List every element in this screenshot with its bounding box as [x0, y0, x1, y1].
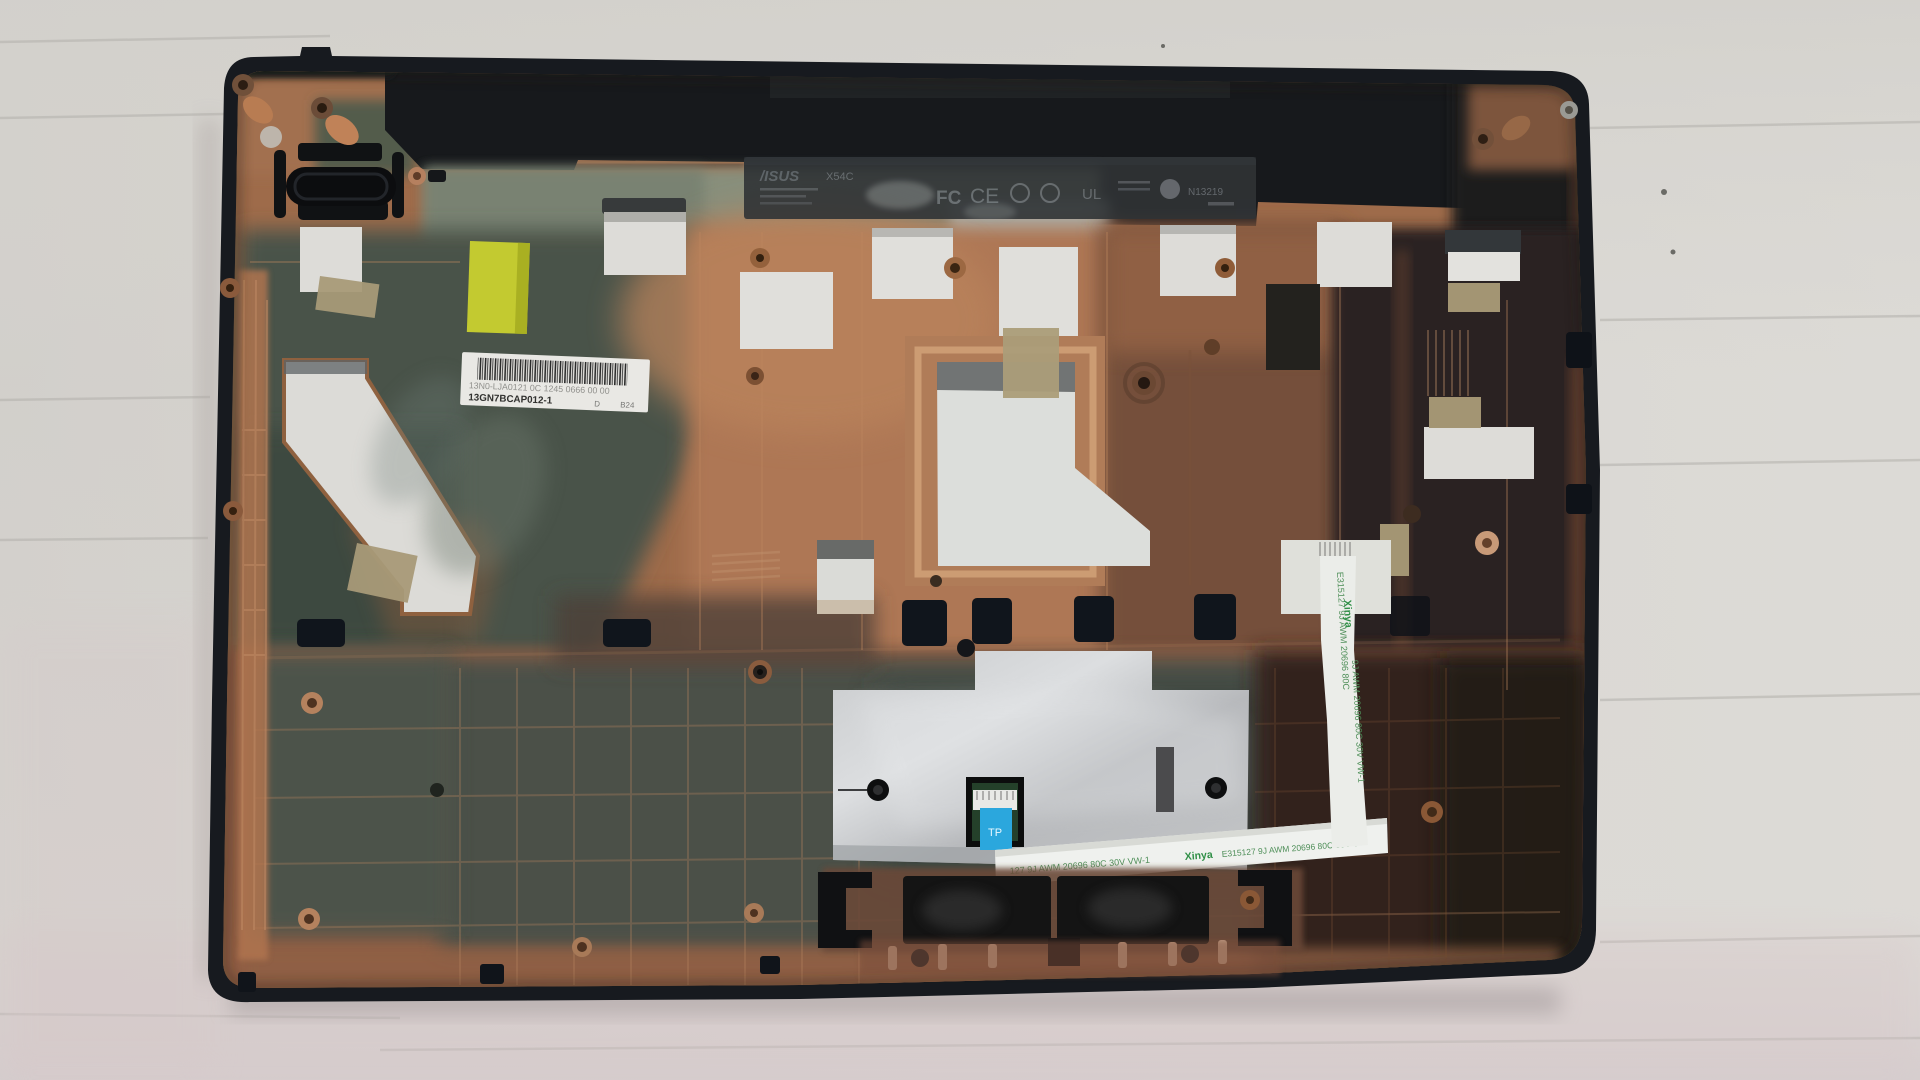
- svg-text:/ISUS: /ISUS: [759, 168, 799, 185]
- svg-text:UL: UL: [1082, 186, 1101, 203]
- svg-text:TP: TP: [988, 827, 1002, 839]
- svg-text:D: D: [594, 399, 600, 408]
- svg-text:CE: CE: [970, 185, 999, 208]
- svg-text:X54C: X54C: [826, 171, 854, 183]
- svg-text:Xinya: Xinya: [1341, 600, 1354, 629]
- svg-text:N13219: N13219: [1188, 187, 1223, 198]
- svg-text:Xinya: Xinya: [1184, 849, 1213, 863]
- svg-text:FC: FC: [936, 188, 962, 209]
- svg-text:B24: B24: [620, 400, 635, 410]
